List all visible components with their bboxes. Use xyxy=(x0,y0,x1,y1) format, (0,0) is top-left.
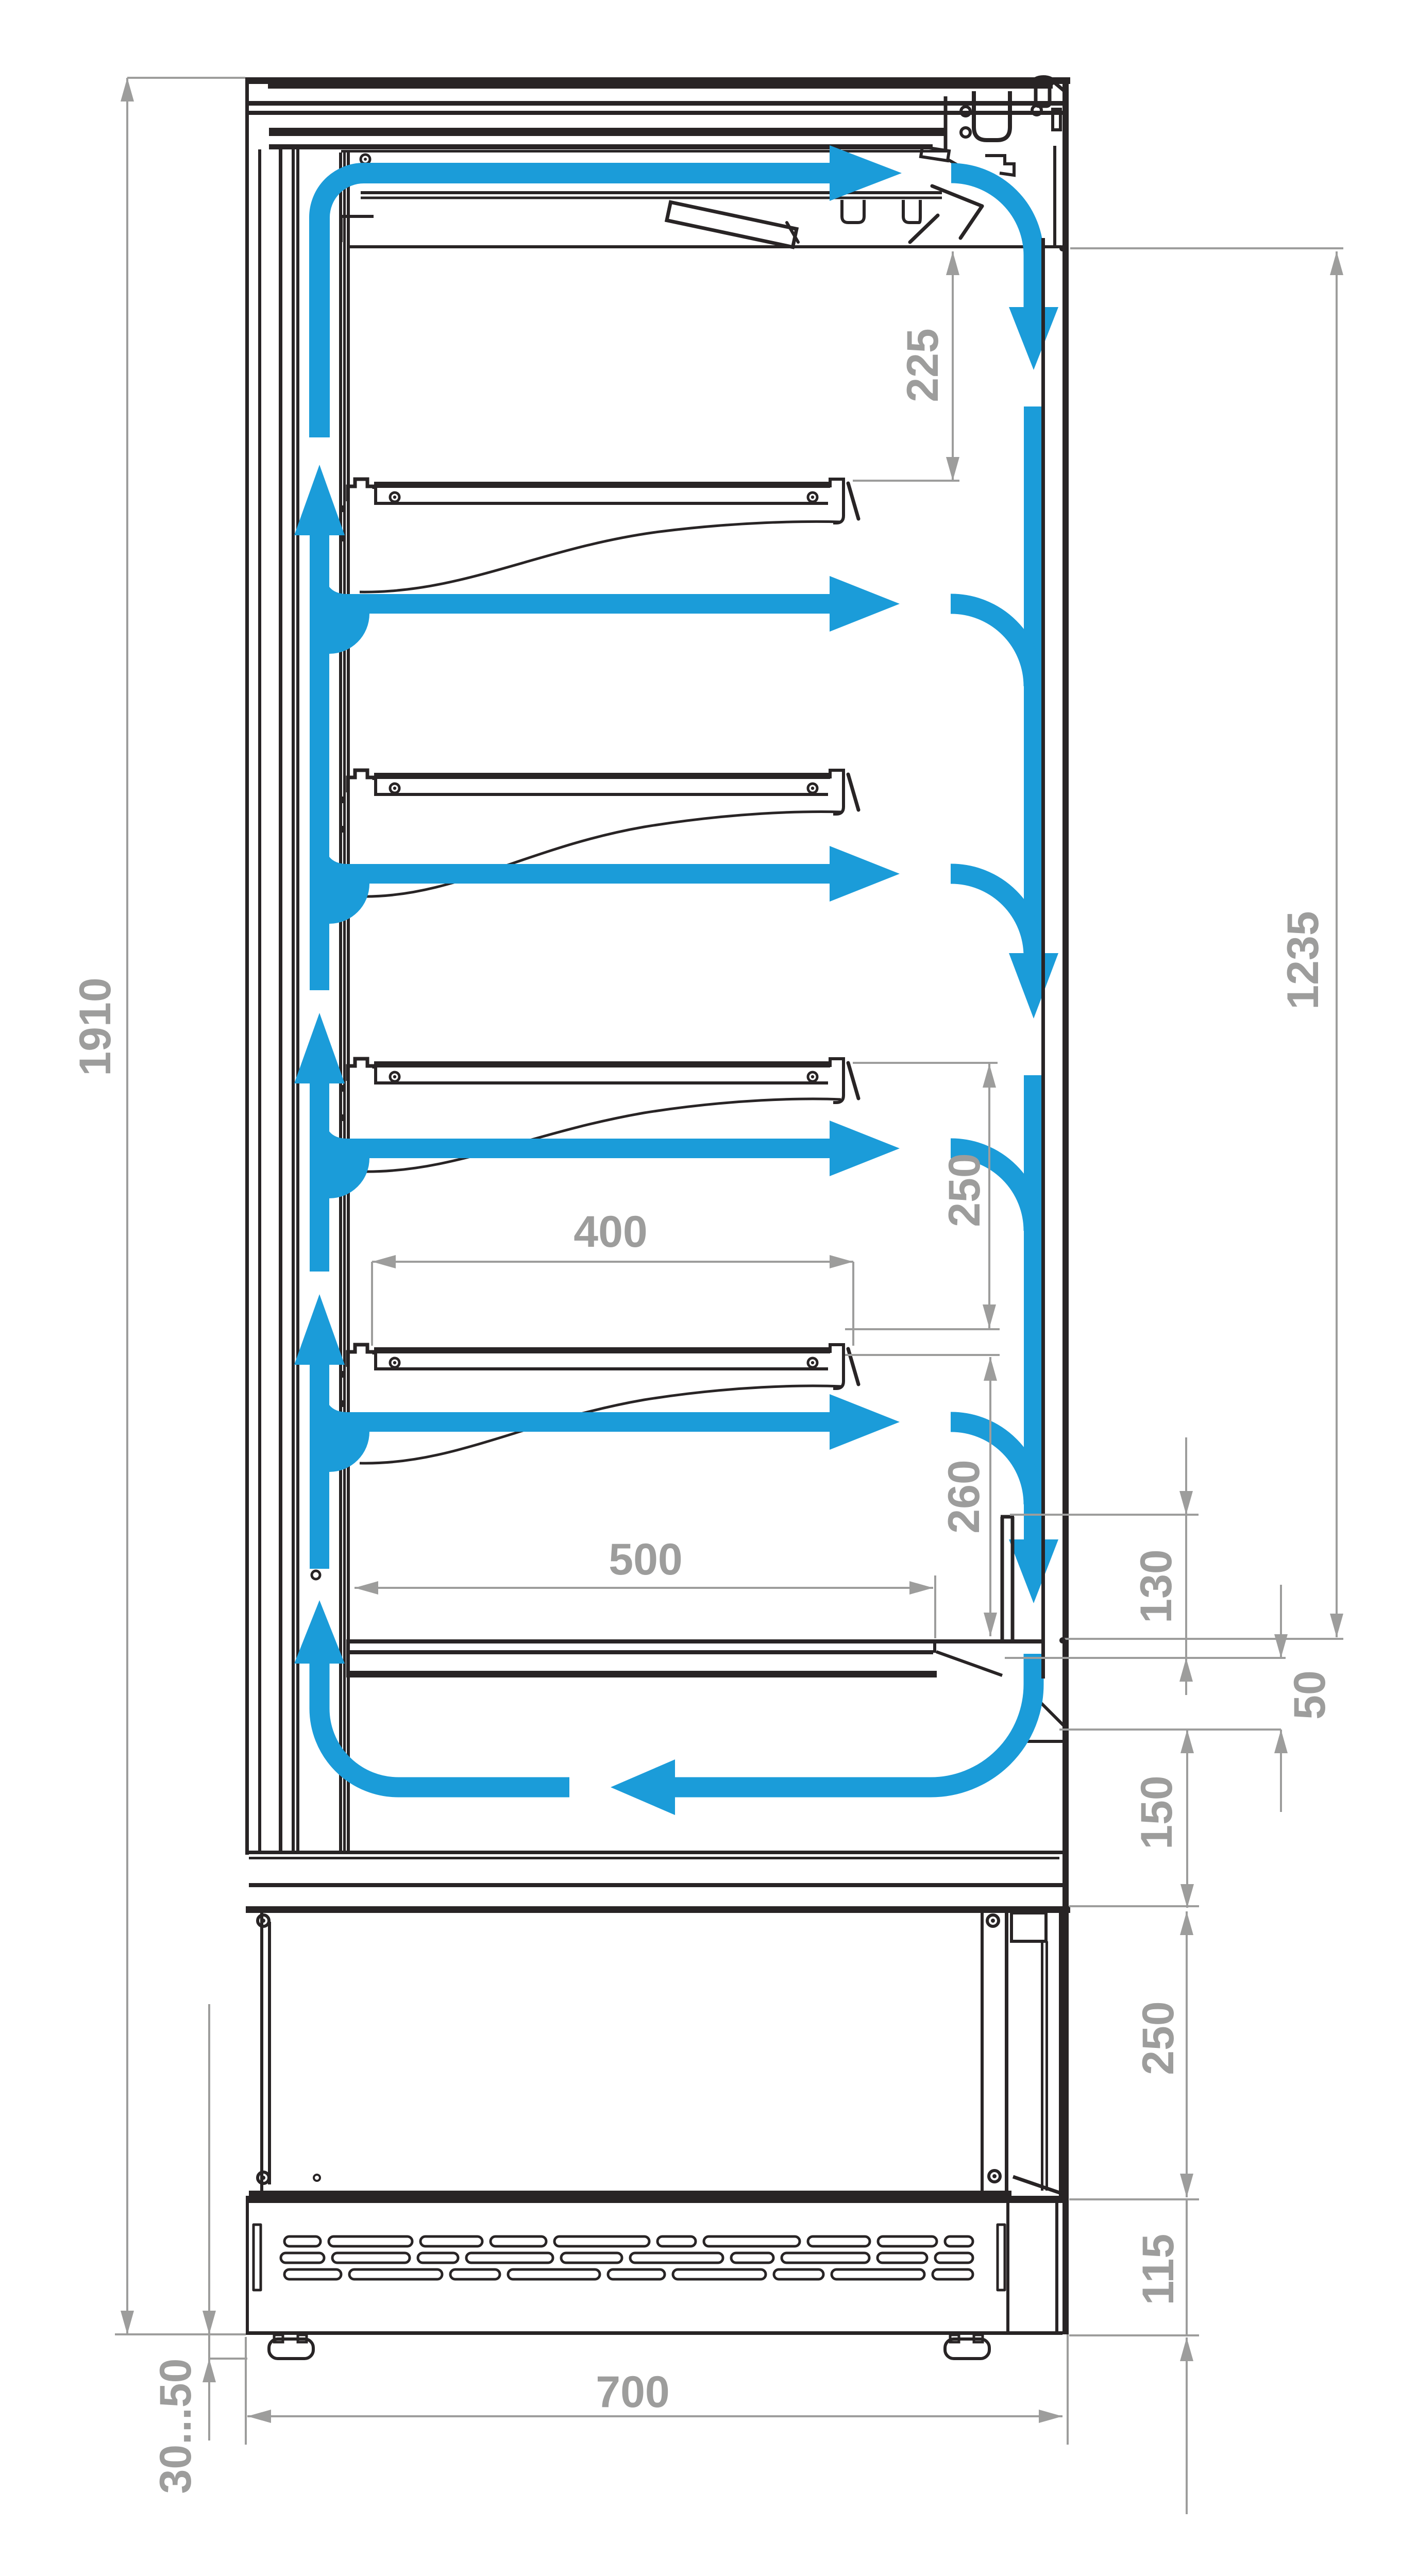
svg-text:115: 115 xyxy=(1134,2234,1183,2306)
svg-text:50: 50 xyxy=(1285,1670,1335,1720)
svg-text:30...50: 30...50 xyxy=(151,2359,200,2494)
svg-text:250: 250 xyxy=(1134,2001,1183,2075)
svg-text:225: 225 xyxy=(898,328,948,402)
svg-text:260: 260 xyxy=(939,1460,989,1534)
svg-text:500: 500 xyxy=(609,1535,683,1584)
svg-text:250: 250 xyxy=(940,1153,989,1227)
svg-text:130: 130 xyxy=(1132,1549,1181,1623)
svg-text:1910: 1910 xyxy=(71,977,120,1076)
svg-text:400: 400 xyxy=(573,1207,648,1257)
svg-text:150: 150 xyxy=(1132,1775,1182,1850)
svg-text:1235: 1235 xyxy=(1278,911,1328,1009)
svg-text:700: 700 xyxy=(596,2367,670,2417)
